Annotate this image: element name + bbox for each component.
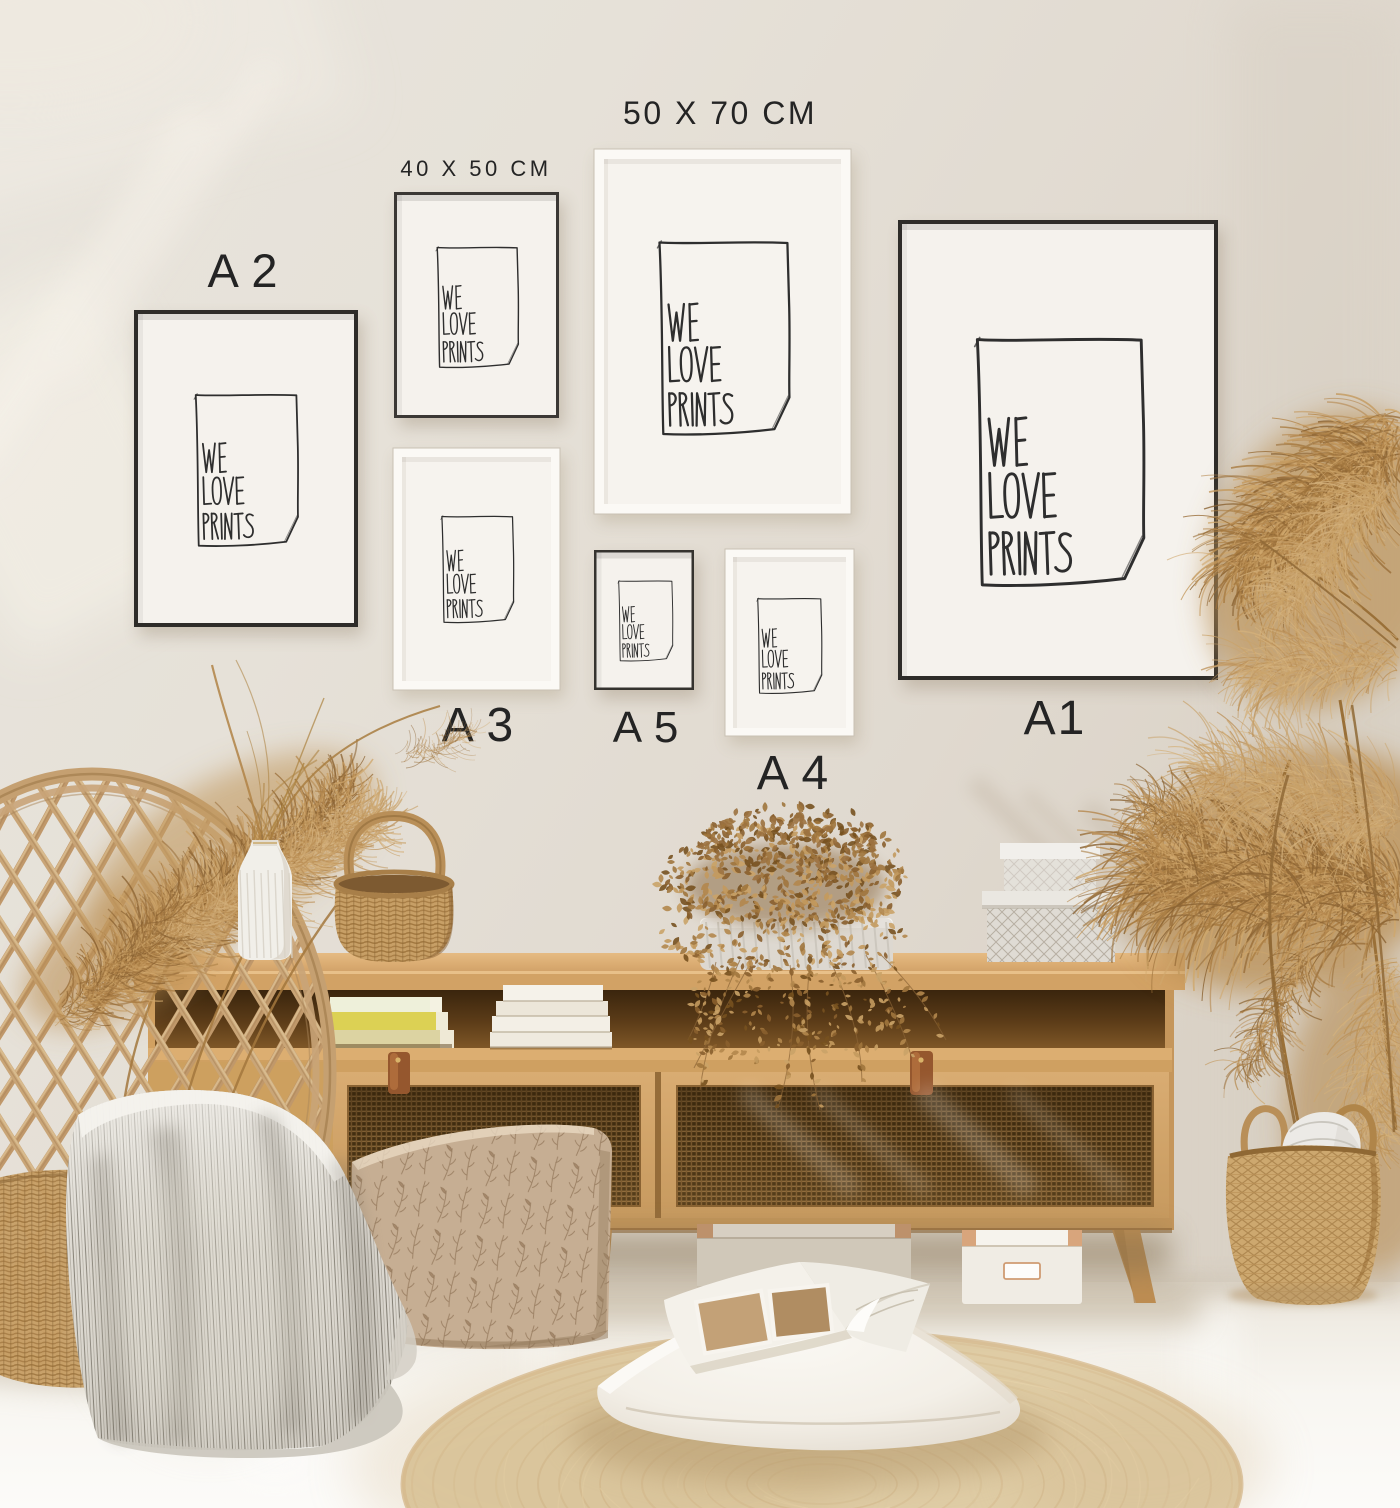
- svg-text:40 X 50 CM: 40 X 50 CM: [400, 156, 551, 181]
- svg-text:A 5: A 5: [613, 703, 680, 752]
- svg-text:A 4: A 4: [757, 747, 829, 800]
- svg-text:50 X 70 CM: 50 X 70 CM: [623, 95, 817, 131]
- svg-text:A 3: A 3: [442, 699, 514, 752]
- svg-text:A 2: A 2: [208, 244, 279, 297]
- svg-text:A1: A1: [1024, 692, 1087, 745]
